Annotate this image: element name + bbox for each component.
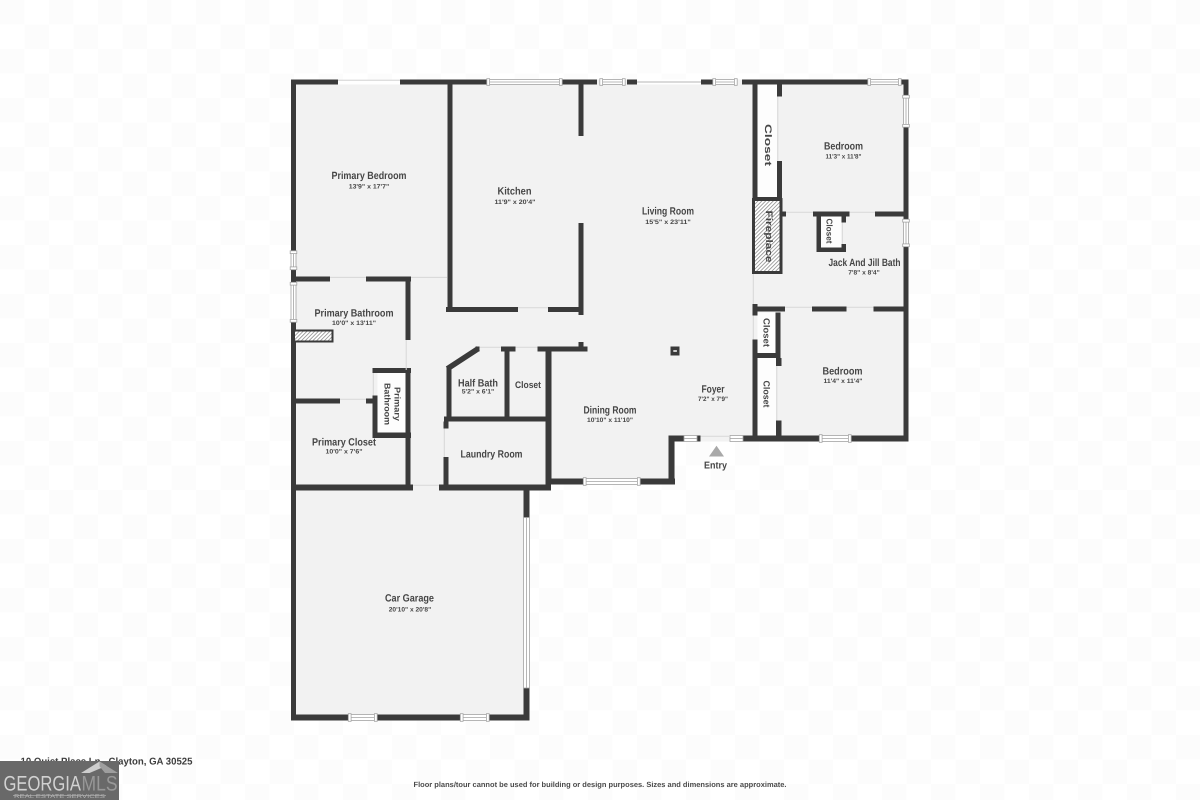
svg-text:Bedroom: Bedroom	[824, 141, 863, 153]
svg-text:10'0" x 7'6": 10'0" x 7'6"	[326, 449, 363, 456]
svg-text:Bathroom: Bathroom	[383, 383, 393, 425]
svg-text:15'5" x 23'11": 15'5" x 23'11"	[645, 219, 691, 226]
svg-text:20'10" x 20'8": 20'10" x 20'8"	[389, 607, 432, 614]
svg-text:Entry: Entry	[704, 461, 727, 472]
svg-text:Kitchen: Kitchen	[498, 186, 532, 198]
svg-text:Closet: Closet	[762, 318, 772, 347]
svg-text:Floor plans/tour cannot be use: Floor plans/tour cannot be used for buil…	[414, 780, 787, 789]
svg-text:Bedroom: Bedroom	[823, 366, 863, 378]
svg-text:Primary Bathroom: Primary Bathroom	[315, 308, 394, 320]
svg-text:Car Garage: Car Garage	[385, 593, 434, 605]
svg-text:GEORGIA: GEORGIA	[4, 773, 82, 796]
svg-text:10'0" x 13'11": 10'0" x 13'11"	[332, 320, 376, 327]
svg-text:Dining Room: Dining Room	[584, 405, 637, 417]
svg-text:7'8" x 8'4": 7'8" x 8'4"	[848, 270, 880, 277]
svg-text:5'2" x 6'1": 5'2" x 6'1"	[462, 389, 495, 396]
svg-text:Jack And Jill Bath: Jack And Jill Bath	[829, 257, 901, 269]
svg-text:Fireplace: Fireplace	[763, 211, 774, 263]
svg-text:Closet: Closet	[825, 219, 835, 244]
svg-text:Primary Bedroom: Primary Bedroom	[332, 170, 407, 182]
svg-text:Living Room: Living Room	[642, 206, 694, 218]
svg-text:11'3" x 11'8": 11'3" x 11'8"	[826, 154, 862, 161]
svg-text:7'2" x 7'9": 7'2" x 7'9"	[698, 396, 728, 403]
svg-text:11'9" x 20'4": 11'9" x 20'4"	[495, 199, 536, 206]
svg-text:Primary: Primary	[393, 387, 403, 421]
svg-text:REAL ESTATE SERVICES: REAL ESTATE SERVICES	[14, 794, 106, 800]
svg-text:MLS: MLS	[82, 773, 118, 796]
svg-text:Closet: Closet	[762, 124, 773, 167]
svg-text:Closet: Closet	[762, 381, 772, 408]
svg-text:Closet: Closet	[515, 380, 542, 391]
svg-text:Laundry Room: Laundry Room	[461, 449, 523, 461]
svg-text:Primary Closet: Primary Closet	[312, 437, 376, 449]
svg-text:Foyer: Foyer	[702, 384, 725, 396]
svg-text:11'4" x 11'4": 11'4" x 11'4"	[824, 378, 863, 385]
svg-text:13'9" x 17'7": 13'9" x 17'7"	[349, 184, 390, 191]
svg-text:10'10" x 11'10": 10'10" x 11'10"	[587, 417, 633, 424]
